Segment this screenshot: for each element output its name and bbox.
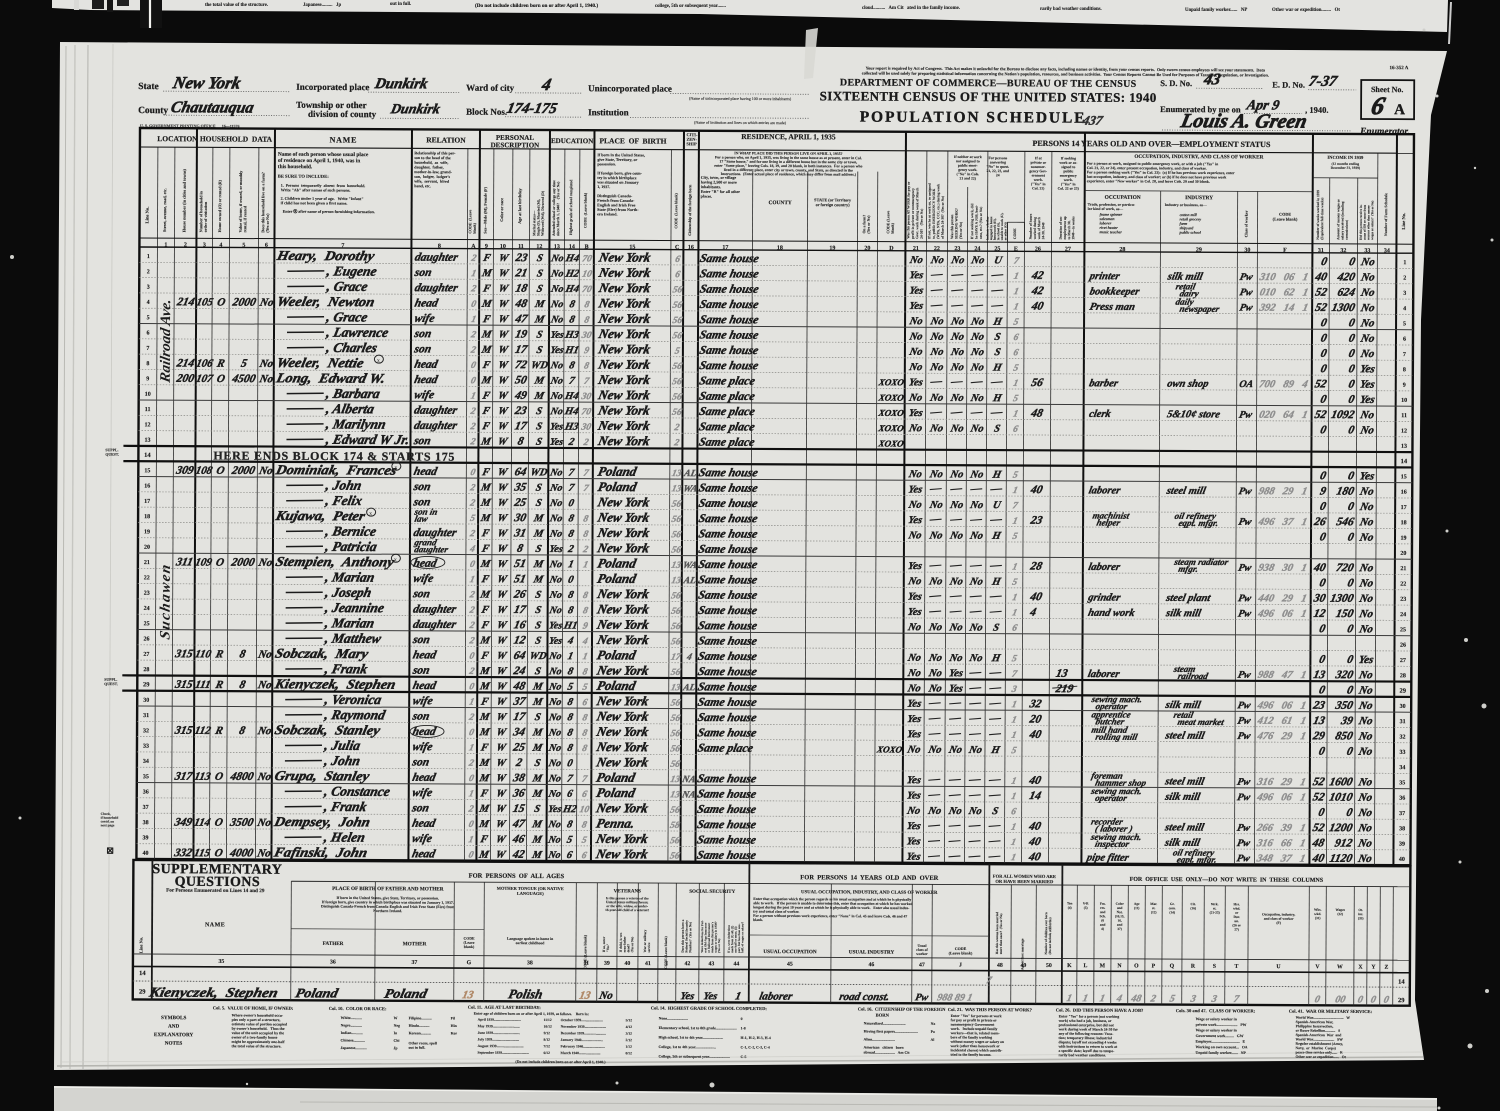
svg-text:Weeler, Nettie: Weeler, Nettie bbox=[275, 356, 365, 372]
svg-text:9: 9 bbox=[1403, 383, 1406, 389]
svg-text:40: 40 bbox=[1399, 857, 1405, 863]
svg-text:EDUCATION: EDUCATION bbox=[551, 137, 593, 145]
svg-text:August 1939...................: August 1939.............................… bbox=[478, 1044, 524, 1048]
svg-text:348: 348 bbox=[1255, 853, 1275, 864]
svg-text:, Edward W Jr.: , Edward W Jr. bbox=[324, 432, 411, 447]
svg-text:No: No bbox=[907, 500, 923, 511]
svg-text:W: W bbox=[1337, 964, 1343, 970]
svg-text:9: 9 bbox=[146, 376, 149, 382]
svg-text:and: and bbox=[1117, 906, 1123, 910]
svg-text:, Julia: , Julia bbox=[322, 738, 362, 753]
svg-text:Hrs.: Hrs. bbox=[1234, 902, 1240, 906]
svg-text:wife: wife bbox=[413, 388, 436, 401]
svg-text:21, 22, 23, and: 21, 22, 23, and bbox=[987, 169, 1011, 173]
svg-text:, Alberta: , Alberta bbox=[324, 401, 376, 416]
svg-text:No: No bbox=[928, 423, 944, 434]
svg-text:Yes: Yes bbox=[547, 804, 563, 815]
svg-text:Gr.: Gr. bbox=[1170, 902, 1175, 906]
svg-text:Same house: Same house bbox=[696, 725, 758, 739]
svg-text:44: 44 bbox=[734, 961, 740, 967]
svg-text:farm: farm bbox=[1180, 222, 1188, 226]
svg-text:Negro............: Negro............ bbox=[341, 1023, 362, 1027]
svg-text:(14): (14) bbox=[1169, 910, 1175, 914]
svg-text:(6: (6 bbox=[1101, 919, 1104, 923]
svg-text:33: 33 bbox=[1399, 750, 1405, 756]
svg-text:New York: New York bbox=[595, 601, 651, 616]
svg-text:Kujawa, Peter: Kujawa, Peter bbox=[273, 509, 367, 525]
svg-text:37: 37 bbox=[143, 805, 149, 811]
svg-text:Line No.: Line No. bbox=[138, 937, 143, 953]
svg-text:No: No bbox=[907, 362, 923, 373]
svg-text:Same place: Same place bbox=[698, 373, 757, 387]
svg-text:No: No bbox=[908, 316, 924, 327]
svg-text:QUEST.: QUEST. bbox=[105, 453, 119, 457]
svg-text:Industry or business, as—: Industry or business, as— bbox=[1165, 203, 1207, 207]
svg-text:(26 or: (26 or bbox=[1232, 923, 1241, 927]
svg-text:5&10¢ store: 5&10¢ store bbox=[1166, 409, 1221, 420]
svg-text:Penna.: Penna. bbox=[595, 816, 636, 831]
svg-text:Col. 22 or 23): Col. 22 or 23) bbox=[1058, 187, 1080, 191]
svg-text:July 1939.....................: July 1939.............................. bbox=[478, 1037, 520, 1041]
svg-text:Na: Na bbox=[931, 1022, 936, 1026]
svg-text:half, of wages or salary?: half, of wages or salary? bbox=[740, 921, 744, 953]
svg-text:No: No bbox=[907, 332, 923, 343]
svg-text:Yes: Yes bbox=[908, 377, 924, 388]
svg-text:New York: New York bbox=[594, 800, 650, 815]
svg-text:(33): (33) bbox=[1358, 916, 1364, 920]
svg-text:No: No bbox=[906, 576, 922, 587]
svg-text:16: 16 bbox=[1401, 490, 1407, 496]
svg-text:Number? (Yes or No): Number? (Yes or No) bbox=[688, 922, 692, 953]
svg-text:5/12: 5/12 bbox=[626, 1018, 633, 1022]
svg-text:For a person without previous: For a person without previous work exper… bbox=[753, 914, 907, 919]
svg-text:Yes: Yes bbox=[679, 991, 695, 1002]
svg-text:Is this person a veteran of th: Is this person a veteran of the bbox=[606, 896, 649, 900]
svg-text:New York: New York bbox=[595, 510, 651, 525]
svg-text:10: 10 bbox=[145, 392, 151, 398]
svg-text:23: 23 bbox=[954, 246, 960, 252]
svg-text:No: No bbox=[547, 773, 563, 784]
svg-text:No: No bbox=[547, 651, 563, 662]
svg-text:a specific date; layoff due to: a specific date; layoff due to tempo- bbox=[1058, 1049, 1115, 1053]
svg-text:850: 850 bbox=[1334, 729, 1354, 742]
svg-text:FOR ALL WOMEN WHO ARE: FOR ALL WOMEN WHO ARE bbox=[993, 874, 1056, 879]
svg-text:H4: H4 bbox=[563, 284, 580, 295]
svg-text:peace-time service only......: peace-time service only...... R bbox=[1295, 1050, 1343, 1054]
svg-text:Same house: Same house bbox=[697, 618, 759, 632]
svg-text:18: 18 bbox=[777, 245, 783, 251]
svg-text:Number of weeks worked in 1939: Number of weeks worked in 1939 bbox=[1316, 190, 1320, 240]
svg-text:daughter: daughter bbox=[413, 404, 459, 417]
svg-text:Same house: Same house bbox=[698, 465, 760, 479]
svg-text:111: 111 bbox=[194, 679, 212, 691]
svg-text:No: No bbox=[927, 684, 943, 695]
svg-text:Northern Ireland.: Northern Ireland. bbox=[373, 909, 402, 913]
svg-text:E: E bbox=[1014, 246, 1018, 252]
svg-text:whd.: whd. bbox=[1233, 907, 1240, 911]
svg-text:3/12: 3/12 bbox=[626, 1032, 633, 1036]
svg-text:and: and bbox=[1100, 910, 1106, 914]
svg-text:437: 437 bbox=[1080, 113, 1104, 128]
svg-text:No: No bbox=[1356, 792, 1373, 804]
svg-text:(Leave blank): (Leave blank) bbox=[1273, 217, 1298, 222]
svg-text:Col. 41. WAR OR MILITARY SERV: Col. 41. WAR OR MILITARY SERVICE: bbox=[1289, 1009, 1373, 1014]
svg-text:inc.: inc. bbox=[1358, 912, 1363, 916]
svg-text:9/12: 9/12 bbox=[544, 1031, 551, 1035]
svg-text:nonemer-: nonemer- bbox=[1031, 165, 1047, 169]
svg-text:OCCUPATION, INDUSTRY, AND CLAS: OCCUPATION, INDUSTRY, AND CLASS OF WORKE… bbox=[1134, 154, 1263, 161]
svg-text:C-5: C-5 bbox=[740, 1055, 746, 1059]
svg-text:Poland: Poland bbox=[596, 556, 638, 571]
svg-text:com.: com. bbox=[1169, 906, 1176, 910]
svg-text:412: 412 bbox=[1255, 716, 1275, 727]
svg-text:50: 50 bbox=[1046, 963, 1052, 969]
svg-text:Spanish-American War and: Spanish-American War and bbox=[1296, 1033, 1343, 1037]
svg-text:, Barbara: , Barbara bbox=[324, 386, 382, 401]
svg-text:D: D bbox=[889, 246, 894, 252]
svg-text:C: C bbox=[675, 245, 679, 251]
svg-text:310: 310 bbox=[1258, 272, 1278, 283]
svg-text:Wks.: Wks. bbox=[1314, 908, 1322, 912]
svg-text:P: P bbox=[1152, 963, 1156, 969]
svg-text:since March 1, 1940? (Yes o: since March 1, 1940? (Yes or No) bbox=[556, 181, 560, 236]
svg-text:If seeking: If seeking bbox=[1061, 156, 1076, 160]
svg-text:commissions): commissions) bbox=[1345, 219, 1349, 240]
svg-text:(4): (4) bbox=[1068, 906, 1072, 910]
svg-text:E. D. No.: E. D. No. bbox=[1272, 80, 1305, 90]
svg-text:No: No bbox=[1358, 409, 1375, 421]
svg-text:4): 4) bbox=[1101, 927, 1104, 931]
svg-text:LANGUAGE): LANGUAGE) bbox=[517, 891, 544, 896]
svg-text:(12 months ending: (12 months ending bbox=[1332, 162, 1360, 166]
svg-text:Yes: Yes bbox=[1359, 394, 1376, 406]
svg-text:New York: New York bbox=[596, 387, 652, 402]
svg-text:Pw: Pw bbox=[1236, 853, 1251, 864]
svg-text:Same house: Same house bbox=[697, 588, 759, 602]
svg-text:Occupation, industry,: Occupation, industry, bbox=[1262, 912, 1295, 916]
svg-text:18: 18 bbox=[144, 514, 150, 520]
svg-text:the total value of the structu: the total value of the structure. bbox=[205, 3, 268, 8]
svg-text:H1: H1 bbox=[563, 345, 580, 356]
svg-text:Other war or expedition.......: Other war or expedition........ Ot bbox=[1272, 8, 1340, 13]
svg-text:Yes: Yes bbox=[906, 775, 922, 786]
svg-text:37): 37) bbox=[1117, 927, 1122, 931]
svg-text:39: 39 bbox=[143, 835, 149, 841]
svg-text:40: 40 bbox=[142, 851, 148, 857]
svg-text:13: 13 bbox=[144, 438, 150, 444]
svg-text:WD: WD bbox=[529, 467, 549, 478]
svg-text:United States military forces;: United States military forces; bbox=[606, 900, 648, 904]
svg-text:A: A bbox=[471, 244, 476, 250]
svg-text:7/12: 7/12 bbox=[544, 1044, 551, 1048]
svg-text:wife: wife bbox=[411, 786, 434, 799]
svg-text:Same house: Same house bbox=[696, 802, 758, 816]
svg-text:Number of Farm Schedule: Number of Farm Schedule bbox=[1384, 193, 1388, 236]
svg-text:If neither at work: If neither at work bbox=[954, 155, 983, 159]
svg-text:No: No bbox=[928, 347, 944, 358]
svg-text:Government work......... GW: Government work......... GW bbox=[1196, 1034, 1244, 1038]
svg-text:36: 36 bbox=[1399, 796, 1405, 802]
svg-text:316: 316 bbox=[1255, 838, 1275, 849]
svg-text:, John: , John bbox=[324, 478, 363, 493]
svg-text:38: 38 bbox=[1399, 826, 1405, 832]
svg-text:May 1939......................: May 1939.............................. bbox=[478, 1024, 520, 1028]
svg-text:315: 315 bbox=[173, 647, 194, 660]
svg-text:High school, 1st to 4th year..: High school, 1st to 4th year............… bbox=[659, 1036, 724, 1040]
svg-text:PERSONS 14 YEARS OLD AND OVER—: PERSONS 14 YEARS OLD AND OVER—EMPLOYMENT… bbox=[1032, 139, 1271, 149]
svg-text:son: son bbox=[411, 587, 431, 600]
svg-text:NOTES: NOTES bbox=[165, 1041, 183, 1047]
svg-text:Q: Q bbox=[1170, 964, 1175, 970]
svg-text:No: No bbox=[1357, 746, 1374, 758]
svg-text:020: 020 bbox=[1258, 410, 1277, 421]
svg-text:son: son bbox=[412, 480, 432, 493]
svg-text:42: 42 bbox=[685, 961, 691, 967]
svg-text:S: S bbox=[1213, 964, 1216, 970]
svg-text:AL: AL bbox=[681, 682, 697, 693]
svg-text:Was this person: Was this person bbox=[950, 215, 954, 239]
svg-text:No: No bbox=[908, 255, 924, 266]
svg-text:the total value of the structu: the total value of the structure. bbox=[232, 1044, 282, 1048]
svg-text:Enter "Yes" for a person (not: Enter "Yes" for a person (not working bbox=[1059, 1015, 1120, 1019]
svg-text:(16): (16) bbox=[1190, 906, 1196, 910]
svg-text:Pw: Pw bbox=[1238, 303, 1253, 314]
svg-text:, Grace: , Grace bbox=[325, 279, 370, 294]
svg-text:(WPA, NYA, CCC, etc.) during w: (WPA, NYA, CCC, etc.) during week bbox=[936, 184, 940, 239]
svg-text:salary received (including: salary received (including bbox=[1340, 201, 1344, 240]
svg-text:Employer......................: Employer.............................. E bbox=[1196, 1040, 1246, 1044]
svg-text:No: No bbox=[968, 577, 984, 588]
svg-text:CODE: CODE bbox=[1013, 228, 1017, 239]
svg-text:emergency: emergency bbox=[1060, 174, 1077, 178]
svg-text:4: 4 bbox=[219, 243, 222, 249]
svg-text:No: No bbox=[948, 469, 964, 480]
svg-text:988: 988 bbox=[1257, 670, 1276, 681]
svg-text:No: No bbox=[1359, 256, 1376, 268]
svg-text:by owner's household. Thus t: by owner's household. Thus the bbox=[232, 1027, 285, 1031]
svg-text:Same house: Same house bbox=[698, 343, 760, 357]
svg-text:420: 420 bbox=[1335, 270, 1356, 283]
svg-text:(F): (F) bbox=[1276, 921, 1281, 925]
svg-text:Govt. work during week of Marc: Govt. work during week of March bbox=[915, 188, 919, 239]
svg-text:No: No bbox=[905, 806, 921, 817]
svg-text:No: No bbox=[967, 745, 983, 756]
svg-text:No: No bbox=[546, 789, 562, 800]
svg-text:2: 2 bbox=[184, 242, 187, 248]
svg-text:No: No bbox=[949, 316, 965, 327]
svg-text:uted to the family income.: uted to the family income. bbox=[950, 1053, 991, 1057]
svg-text:No: No bbox=[967, 806, 983, 817]
svg-text:(32): (32) bbox=[1337, 912, 1343, 916]
svg-text:No: No bbox=[257, 373, 274, 385]
svg-text:Yes: Yes bbox=[906, 607, 922, 618]
svg-text:New York: New York bbox=[170, 73, 243, 92]
svg-text:Poland: Poland bbox=[596, 647, 638, 662]
svg-text:Widowed (Wd), Divorced (D): Widowed (Wd), Divorced (D) bbox=[541, 190, 545, 236]
svg-text:Language spoken in home in: Language spoken in home in bbox=[507, 937, 554, 941]
svg-text:No: No bbox=[947, 653, 963, 664]
svg-text:If so, enter: If so, enter bbox=[602, 936, 606, 952]
svg-text:1092: 1092 bbox=[1330, 408, 1356, 421]
svg-text:Yes: Yes bbox=[1358, 470, 1375, 482]
svg-text:World War.....................: World War...............................… bbox=[1296, 1016, 1351, 1020]
svg-text:x: x bbox=[377, 358, 380, 364]
svg-text:3: 3 bbox=[147, 285, 150, 291]
svg-text:, Joseph: , Joseph bbox=[323, 585, 373, 600]
svg-text:work. Include unpaid family: work. Include unpaid family bbox=[951, 1027, 998, 1031]
svg-text:work or as-: work or as- bbox=[1059, 161, 1078, 165]
svg-text:No: No bbox=[906, 683, 922, 694]
svg-text:(Leave: (Leave bbox=[464, 941, 475, 945]
svg-text:XOXO: XOXO bbox=[875, 744, 904, 754]
svg-text:No: No bbox=[927, 531, 943, 542]
svg-text:Dunkirk: Dunkirk bbox=[372, 75, 430, 92]
svg-text:496: 496 bbox=[1256, 609, 1276, 620]
svg-text:No: No bbox=[967, 653, 983, 664]
svg-text:x: x bbox=[369, 511, 372, 517]
svg-text:for pay or profit in private o: for pay or profit in private or bbox=[951, 1018, 997, 1022]
svg-text:1300: 1300 bbox=[1331, 301, 1357, 314]
svg-text:No: No bbox=[948, 622, 964, 633]
svg-text:Distinguish Canada-French from: Distinguish Canada-French from Canada-En… bbox=[321, 904, 455, 909]
svg-text:Same house: Same house bbox=[697, 526, 759, 540]
svg-text:26: 26 bbox=[1035, 247, 1041, 253]
svg-text:STATE (or Territory: STATE (or Territory bbox=[814, 197, 852, 202]
svg-text:New York: New York bbox=[597, 250, 653, 265]
svg-text:20: 20 bbox=[864, 246, 870, 252]
svg-text:H1: H1 bbox=[562, 621, 579, 632]
svg-text:21: 21 bbox=[913, 246, 919, 252]
svg-text:14: 14 bbox=[1401, 458, 1408, 465]
svg-text:with instructions to return to: with instructions to return to work at bbox=[1059, 1045, 1119, 1049]
svg-text:daughter: daughter bbox=[414, 281, 460, 294]
svg-text:Yes: Yes bbox=[907, 561, 923, 572]
svg-text:Hindu...........: Hindu........... bbox=[409, 1024, 430, 1028]
svg-text:, Eugene: , Eugene bbox=[325, 264, 379, 279]
svg-text:(12): (12) bbox=[1151, 910, 1157, 914]
svg-text:No: No bbox=[927, 622, 943, 633]
svg-text:blank): blank) bbox=[464, 945, 475, 949]
svg-text:Yes: Yes bbox=[907, 515, 923, 526]
svg-text:Navy, or Marine Corps): Navy, or Marine Corps) bbox=[1296, 1046, 1337, 1050]
svg-text:624: 624 bbox=[1336, 286, 1356, 299]
svg-text:owner of a two-family house: owner of a two-family house bbox=[232, 1035, 278, 1039]
svg-text:Yes: Yes bbox=[908, 301, 924, 312]
svg-text:No: No bbox=[927, 576, 943, 587]
svg-text:Same house: Same house bbox=[696, 832, 758, 846]
svg-text:38: 38 bbox=[143, 820, 149, 826]
svg-text:April 1939....................: April 1939.............................. bbox=[478, 1018, 521, 1022]
svg-text:frame spinner: frame spinner bbox=[1100, 213, 1123, 217]
svg-text:college, 5th or subsequent yea: college, 5th or subsequent year....... bbox=[655, 4, 726, 9]
svg-text:Same house: Same house bbox=[697, 664, 759, 678]
svg-text:more than once? (Yes or No): more than once? (Yes or No) bbox=[999, 913, 1003, 954]
svg-text:SIXTEENTH CENSUS OF THE UNITED: SIXTEENTH CENSUS OF THE UNITED STATES: 1… bbox=[820, 88, 1157, 105]
svg-text:No: No bbox=[549, 284, 565, 295]
svg-text:No: No bbox=[1357, 700, 1374, 712]
svg-text:Same house: Same house bbox=[698, 481, 760, 495]
svg-text:26: 26 bbox=[1400, 643, 1406, 649]
svg-text:Yes: Yes bbox=[548, 620, 564, 631]
svg-text:Al: Al bbox=[931, 1038, 935, 1042]
svg-text:T: T bbox=[1234, 964, 1238, 970]
svg-text:106: 106 bbox=[195, 358, 214, 370]
svg-text:17: 17 bbox=[722, 245, 728, 251]
svg-text:public: public bbox=[1063, 169, 1073, 173]
svg-text:2000: 2000 bbox=[229, 556, 256, 569]
svg-text:DESCRIPTION: DESCRIPTION bbox=[491, 141, 540, 149]
svg-text:son: son bbox=[410, 710, 430, 723]
svg-text:bookkeeper: bookkeeper bbox=[1089, 287, 1142, 298]
svg-text:Wage or salary worker in: Wage or salary worker in bbox=[1196, 1028, 1238, 1032]
svg-text:No: No bbox=[948, 531, 964, 542]
svg-text:12: 12 bbox=[536, 244, 542, 250]
svg-text:No: No bbox=[549, 360, 565, 371]
svg-text:New York: New York bbox=[597, 265, 653, 280]
svg-text:No: No bbox=[1358, 425, 1375, 437]
svg-text:No: No bbox=[947, 806, 963, 817]
svg-text:NA: NA bbox=[680, 789, 697, 800]
svg-text:Cit.: Cit. bbox=[1191, 902, 1197, 906]
svg-text:315: 315 bbox=[173, 724, 194, 737]
svg-text:Railroad Ave.: Railroad Ave. bbox=[158, 298, 174, 385]
svg-text:No: No bbox=[1357, 578, 1374, 590]
svg-text:29: 29 bbox=[139, 989, 146, 996]
svg-text:1300: 1300 bbox=[1329, 592, 1355, 605]
svg-text:309: 309 bbox=[174, 464, 195, 477]
svg-text:Attended school or college any: Attended school or college any time bbox=[552, 180, 556, 236]
svg-text:(Equivalent full-time weeks): (Equivalent full-time weeks) bbox=[1320, 197, 1324, 240]
svg-text:938: 938 bbox=[1257, 563, 1276, 574]
svg-text:without ⁠money wages or salary: without ⁠money wages or salary on bbox=[951, 1040, 1005, 1044]
svg-text:New York: New York bbox=[595, 586, 651, 601]
svg-text:A: A bbox=[1394, 102, 1405, 118]
svg-text:laborer: laborer bbox=[758, 991, 794, 1003]
svg-text:32: 32 bbox=[143, 728, 149, 734]
svg-text:Sch.: Sch. bbox=[1100, 914, 1106, 918]
svg-text:New York: New York bbox=[596, 372, 652, 387]
svg-text:26: 26 bbox=[143, 637, 149, 643]
svg-text:Color or race: Color or race bbox=[499, 198, 504, 222]
svg-text:Pw: Pw bbox=[1238, 410, 1253, 421]
svg-text:Same place: Same place bbox=[698, 419, 757, 433]
svg-text:, Lawrence: , Lawrence bbox=[324, 325, 390, 340]
svg-text:New York: New York bbox=[596, 418, 652, 433]
svg-text:Same house: Same house bbox=[696, 817, 758, 831]
svg-text:Pw: Pw bbox=[1236, 792, 1251, 803]
svg-text:son: son bbox=[412, 434, 432, 447]
svg-text:No: No bbox=[548, 529, 564, 540]
svg-text:2000: 2000 bbox=[230, 464, 257, 477]
svg-text:Col. 5. VALUE OF HOME, IF OWN: Col. 5. VALUE OF HOME, IF OWNED: bbox=[213, 1005, 294, 1010]
svg-text:BORN: BORN bbox=[876, 1013, 890, 1018]
svg-text:December 1939.................: December 1939........................ bbox=[561, 1031, 606, 1035]
svg-text:J: J bbox=[959, 963, 962, 969]
svg-text:Pw: Pw bbox=[1236, 838, 1251, 849]
svg-text:Pw: Pw bbox=[1239, 272, 1254, 283]
svg-text:349: 349 bbox=[172, 816, 193, 829]
svg-text:head: head bbox=[412, 648, 438, 661]
svg-text:New York: New York bbox=[595, 540, 651, 555]
svg-text:rolling mill: rolling mill bbox=[1095, 732, 1139, 742]
svg-text:railroad: railroad bbox=[1177, 671, 1210, 681]
svg-text:blank): blank) bbox=[891, 222, 895, 233]
svg-text:22: 22 bbox=[144, 575, 150, 581]
svg-text:CODE: CODE bbox=[1279, 212, 1291, 217]
svg-text:34: 34 bbox=[1399, 765, 1405, 771]
svg-text:grinder: grinder bbox=[1086, 593, 1122, 604]
svg-text:, Bernice: , Bernice bbox=[323, 524, 377, 539]
